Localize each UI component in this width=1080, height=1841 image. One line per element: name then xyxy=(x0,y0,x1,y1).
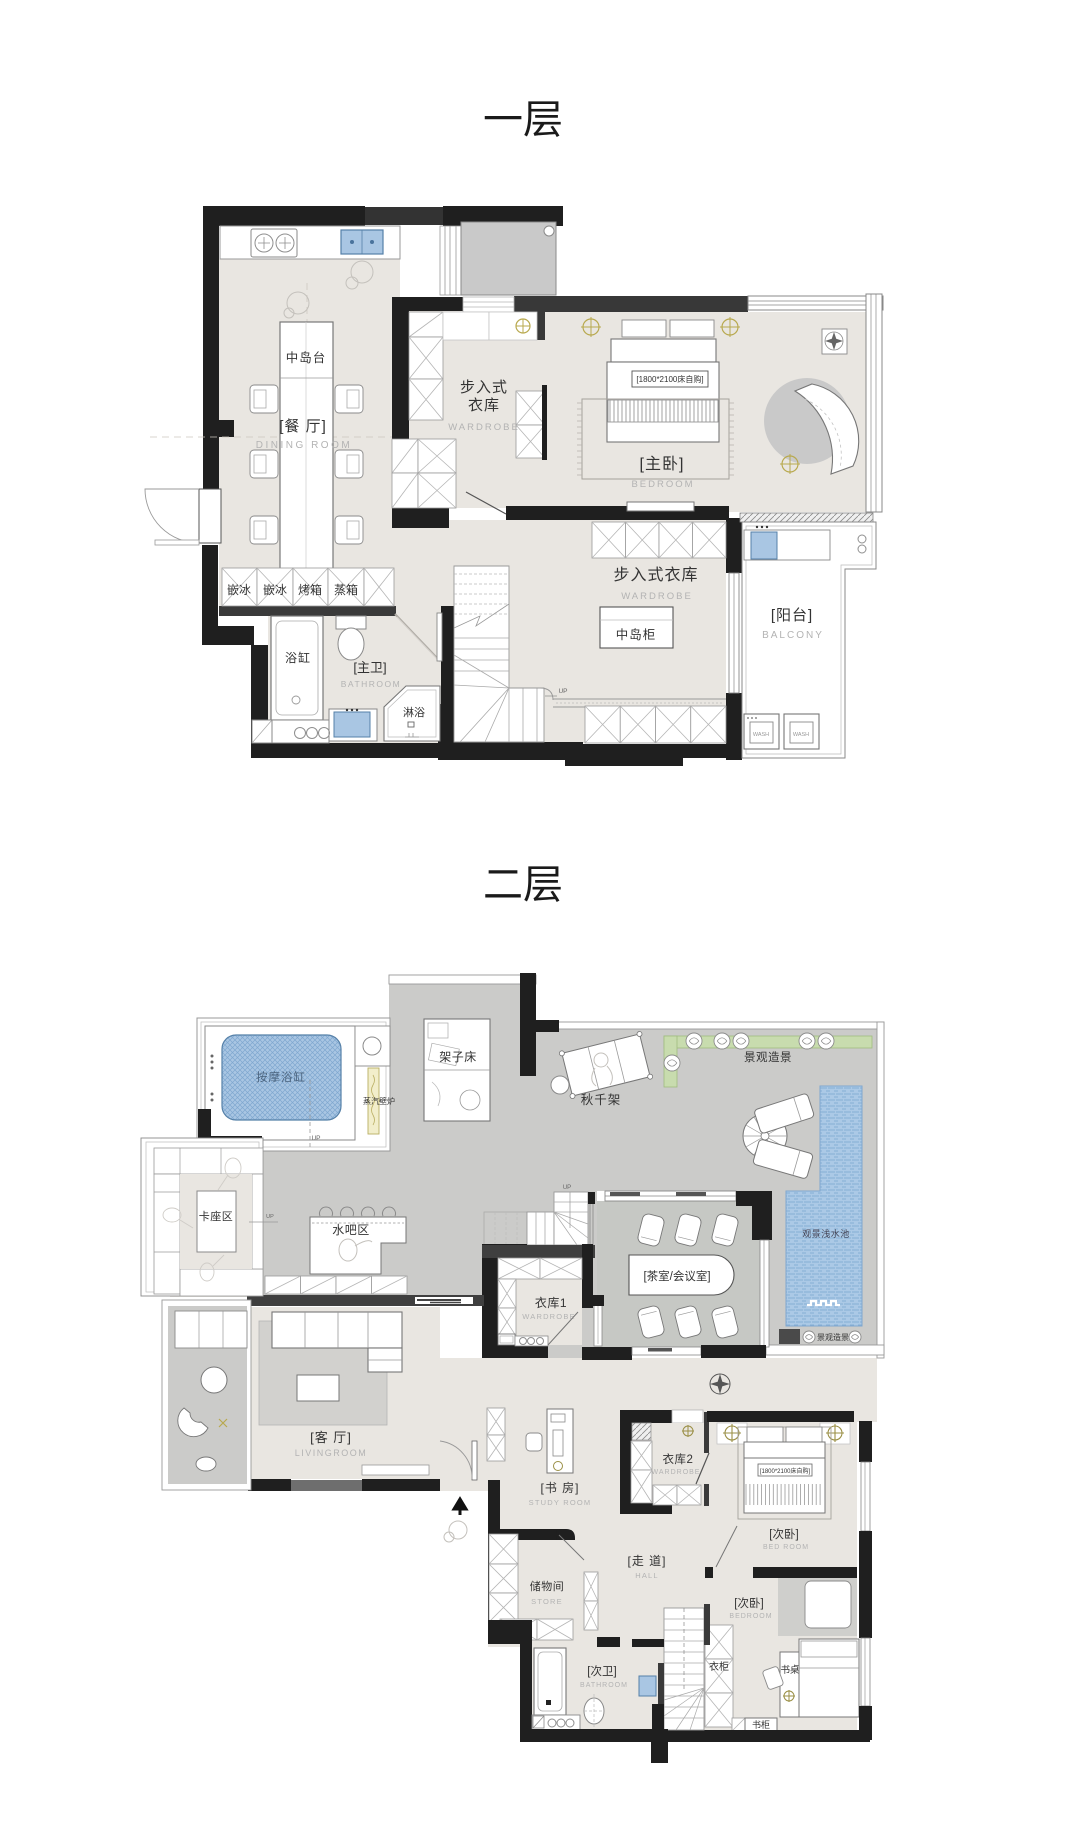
svg-text:[客 厅]: [客 厅] xyxy=(310,1430,352,1445)
svg-text:秋千架: 秋千架 xyxy=(581,1093,622,1107)
svg-text:BALCONY: BALCONY xyxy=(762,630,824,641)
svg-text:WARDROBE: WARDROBE xyxy=(652,1469,701,1476)
svg-text:水吧区: 水吧区 xyxy=(332,1223,370,1237)
svg-text:嵌冰: 嵌冰 xyxy=(263,583,287,597)
svg-text:UP: UP xyxy=(563,1185,571,1191)
svg-text:DINING ROOM: DINING ROOM xyxy=(256,440,352,451)
svg-text:BEDROOM: BEDROOM xyxy=(729,1613,772,1620)
svg-text:UP: UP xyxy=(311,1135,320,1142)
svg-text:蒸汽壁炉: 蒸汽壁炉 xyxy=(363,1096,395,1106)
svg-text:烤箱: 烤箱 xyxy=(298,582,322,597)
svg-text:卡座区: 卡座区 xyxy=(199,1209,234,1223)
svg-text:[1800*2100床自购]: [1800*2100床自购] xyxy=(760,1467,811,1475)
svg-text:[走 道]: [走 道] xyxy=(627,1554,666,1568)
svg-text:景观造景: 景观造景 xyxy=(817,1332,849,1342)
svg-text:BATHROOM: BATHROOM xyxy=(341,679,401,689)
svg-text:BEDROOM: BEDROOM xyxy=(631,479,694,490)
svg-text:书柜: 书柜 xyxy=(752,1719,770,1730)
svg-text:BATHROOM: BATHROOM xyxy=(580,1682,628,1689)
svg-text:[主卫]: [主卫] xyxy=(353,660,386,675)
svg-text:衣柜: 衣柜 xyxy=(709,1660,729,1673)
svg-text:STORE: STORE xyxy=(531,1597,563,1606)
svg-text:WARDROBE: WARDROBE xyxy=(448,422,520,433)
svg-text:按摩浴缸: 按摩浴缸 xyxy=(256,1070,306,1084)
svg-text:[餐 厅]: [餐 厅] xyxy=(279,418,327,435)
svg-text:中岛柜: 中岛柜 xyxy=(616,627,657,642)
svg-text:景观造景: 景观造景 xyxy=(744,1050,792,1064)
svg-text:蒸箱: 蒸箱 xyxy=(334,582,358,597)
svg-text:UP: UP xyxy=(558,688,567,695)
svg-text:中岛台: 中岛台 xyxy=(286,350,327,365)
svg-text:步入式衣库: 步入式衣库 xyxy=(613,566,698,584)
svg-text:BED ROOM: BED ROOM xyxy=(763,1544,809,1551)
svg-text:书桌: 书桌 xyxy=(780,1664,800,1676)
svg-text:[阳台]: [阳台] xyxy=(771,607,813,624)
svg-text:观景浅水池: 观景浅水池 xyxy=(802,1228,850,1239)
svg-text:衣库1: 衣库1 xyxy=(535,1295,567,1310)
svg-text:衣库: 衣库 xyxy=(468,397,500,414)
svg-text:淋浴: 淋浴 xyxy=(403,706,425,719)
svg-text:架子床: 架子床 xyxy=(439,1050,477,1064)
svg-text:[书 房]: [书 房] xyxy=(540,1480,579,1495)
svg-text:UP: UP xyxy=(266,1214,274,1220)
svg-text:[次卧]: [次卧] xyxy=(734,1596,763,1610)
svg-text:步入式: 步入式 xyxy=(460,379,508,396)
svg-text:[主卧]: [主卧] xyxy=(640,455,685,473)
svg-text:浴缸: 浴缸 xyxy=(285,650,311,665)
svg-text:储物间: 储物间 xyxy=(530,1579,565,1593)
svg-text:一层: 一层 xyxy=(483,98,563,142)
svg-text:STUDY ROOM: STUDY ROOM xyxy=(529,1498,592,1507)
svg-text:[次卫]: [次卫] xyxy=(587,1664,616,1678)
svg-text:WASH: WASH xyxy=(793,732,809,738)
svg-text:WASH: WASH xyxy=(753,732,769,738)
svg-text:嵌冰: 嵌冰 xyxy=(227,583,251,597)
svg-text:衣库2: 衣库2 xyxy=(663,1452,694,1466)
svg-text:[茶室/会议室]: [茶室/会议室] xyxy=(643,1269,710,1283)
svg-text:WARDROBE: WARDROBE xyxy=(522,1312,576,1321)
svg-text:LIVINGROOM: LIVINGROOM xyxy=(295,1448,368,1458)
svg-text:[次卧]: [次卧] xyxy=(769,1527,798,1541)
svg-text:HALL: HALL xyxy=(635,1571,659,1580)
svg-text:二层: 二层 xyxy=(483,863,563,907)
svg-text:[1800*2100床自购]: [1800*2100床自购] xyxy=(636,374,703,384)
svg-text:WARDROBE: WARDROBE xyxy=(621,591,693,602)
